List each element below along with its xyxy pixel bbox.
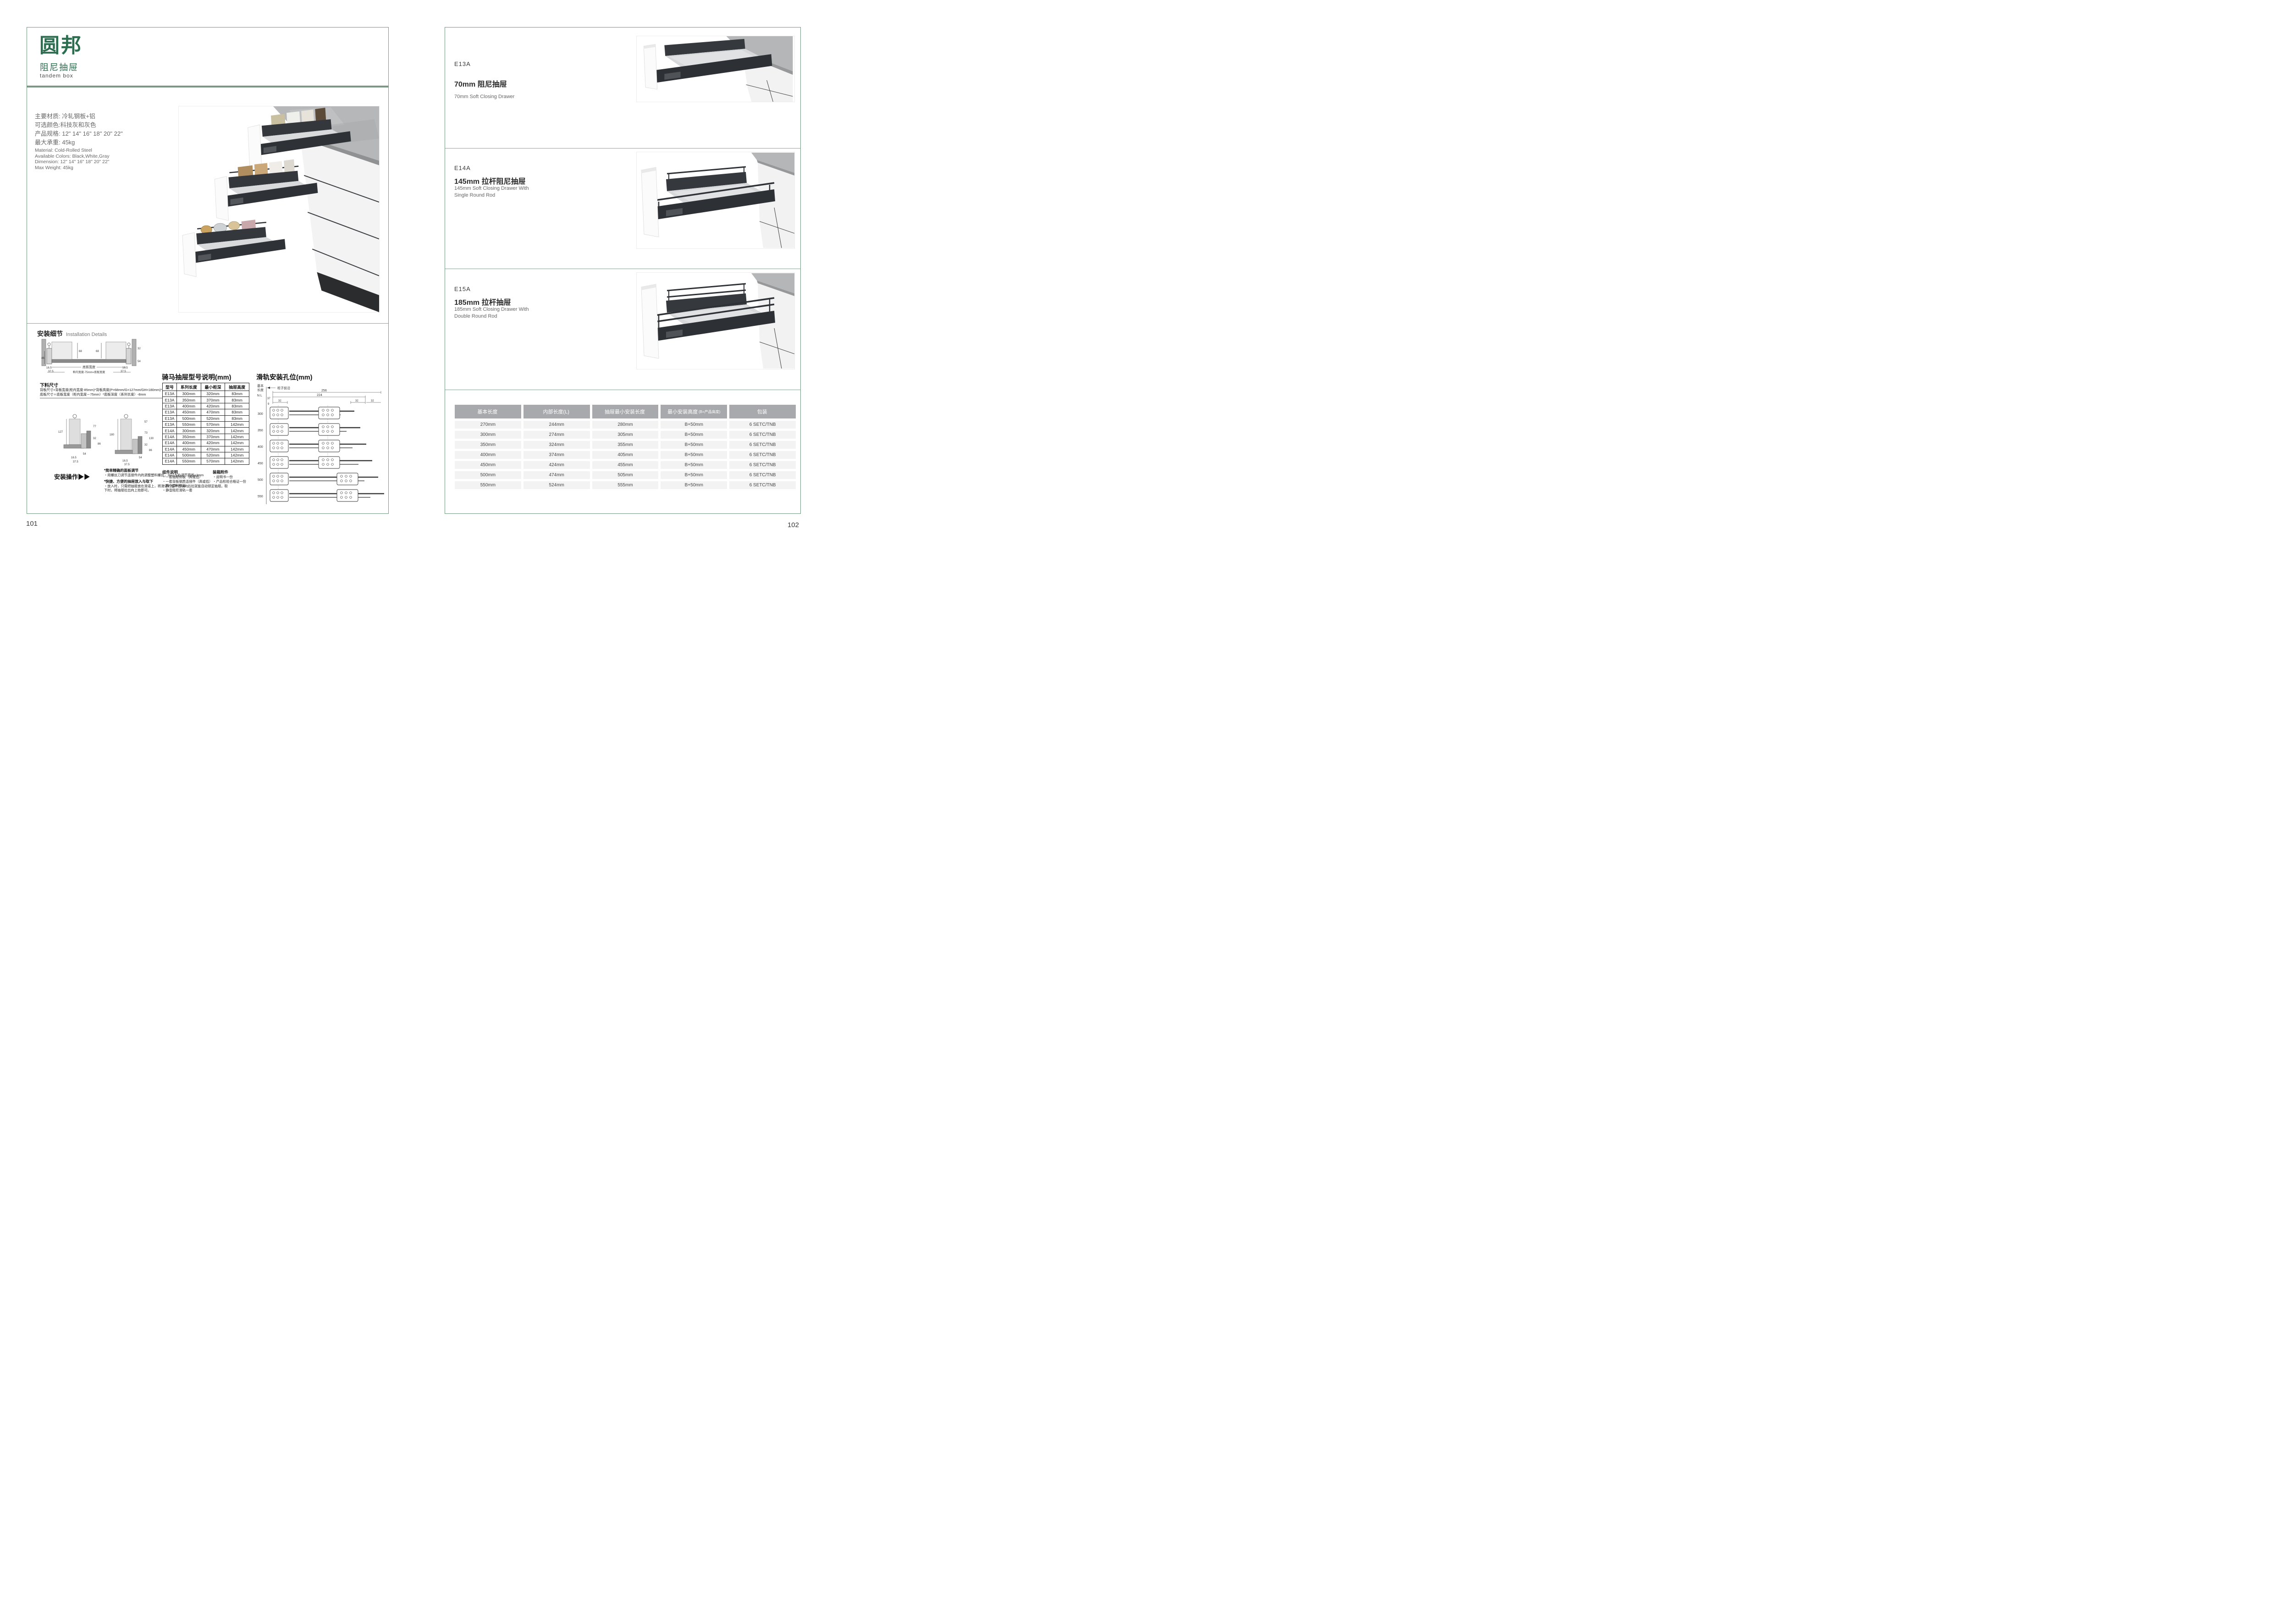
cell-model: E13A — [163, 403, 177, 409]
cutting-line: 背板尺寸=背板宽度(柜内宽度-85mm)*背板高度(P=68mm/G=127mm… — [40, 388, 171, 392]
section-divider — [445, 148, 800, 149]
table-row: E14A 300mm 320mm 142mm — [163, 428, 249, 434]
cell-min-depth: 370mm — [201, 397, 225, 403]
cell-basic-length: 270mm — [455, 421, 521, 429]
dim-label: 9 — [268, 403, 270, 406]
table-row: 500mm 474mm 505mm B+50mm 6 SETC/TNB — [455, 471, 796, 479]
dim-label: 37.5 — [124, 463, 130, 466]
cell-inner-length: 274mm — [523, 431, 590, 439]
header-text: 最小安装高度 — [667, 408, 698, 415]
spec-line: Available Colors: Black,White,Gray — [35, 154, 110, 160]
cell-height: 142mm — [225, 421, 249, 427]
dim-label: 86 — [149, 449, 152, 452]
cell-series-length: 450mm — [177, 409, 201, 415]
size-table-body: 270mm 244mm 280mm B+50mm 6 SETC/TNB 300m… — [455, 421, 796, 489]
brand-subtitle: 阻尼抽屉 — [40, 61, 78, 73]
cell-series-length: 300mm — [177, 428, 201, 434]
dim-label: 77 — [93, 425, 96, 428]
rail-row-label: 350 — [258, 429, 263, 432]
model-table-title: 骑马抽屉型号说明(mm) — [162, 372, 231, 382]
cell-series-length: 550mm — [177, 421, 201, 427]
section-divider — [445, 269, 800, 269]
cell-packing: 6 SETC/TNB — [729, 431, 796, 439]
dim-label: 37.5 — [121, 370, 126, 373]
cell-series-length: 350mm — [177, 397, 201, 403]
brand-tagline: tandem box — [40, 72, 73, 79]
cell-series-length: 400mm — [177, 440, 201, 446]
table-row: E13A 500mm 520mm 83mm — [163, 415, 249, 421]
list-item: ・一套背板钢质连接件（高或低） — [162, 479, 212, 484]
dim-label: 86 — [98, 443, 101, 446]
cell-series-length: 400mm — [177, 403, 201, 409]
cell-basic-length: 550mm — [455, 481, 521, 489]
list-item: ・两个塑料侧盖 — [162, 484, 212, 488]
rail-hole-diagram: 基本 长度 N L 柜子前沿 256 224 37 9 32 32 32 — [256, 381, 387, 511]
table-row: E13A 550mm 570mm 142mm — [163, 421, 249, 427]
page-number-right: 102 — [788, 521, 799, 529]
diagram-label: 底板宽度 — [83, 365, 95, 369]
cell-model: E14A — [163, 440, 177, 446]
cell-min-install-length: 280mm — [592, 421, 659, 429]
cell-inner-length: 374mm — [523, 451, 590, 459]
product-title-cn: 145mm 拉杆阻尼抽屉 — [454, 175, 526, 186]
cell-packing: 6 SETC/TNB — [729, 441, 796, 449]
table-header-cell: 包装 — [729, 405, 796, 418]
drawer-illustration-70mm — [637, 36, 794, 102]
brand-logo: 圆邦 — [39, 36, 83, 56]
table-row: 550mm 524mm 555mm B+50mm 6 SETC/TNB — [455, 481, 796, 489]
cell-packing: 6 SETC/TNB — [729, 461, 796, 469]
cell-min-install-length: 405mm — [592, 451, 659, 459]
dim-label: 37.5 — [48, 370, 54, 373]
drawer-bottom — [182, 220, 286, 277]
cell-model: E13A — [163, 415, 177, 421]
cell-min-depth: 320mm — [201, 428, 225, 434]
cell-basic-length: 450mm — [455, 461, 521, 469]
dim-label: 37 — [267, 397, 270, 400]
cell-model: E14A — [163, 452, 177, 458]
cell-series-length: 350mm — [177, 434, 201, 440]
dim-label: 73 — [144, 432, 148, 435]
cell-series-length: 500mm — [177, 452, 201, 458]
cell-min-depth: 370mm — [201, 434, 225, 440]
cell-min-install-height: B+50mm — [661, 481, 727, 489]
rail-row-label: 300 — [258, 413, 263, 416]
section-divider — [445, 390, 800, 390]
table-row: 400mm 374mm 405mm B+50mm 6 SETC/TNB — [455, 451, 796, 459]
cell-series-length: 300mm — [177, 391, 201, 397]
table-row: E14A 550mm 570mm 142mm — [163, 458, 249, 464]
rail-row-label: 550 — [258, 495, 263, 498]
dim-label: 180 — [110, 434, 115, 436]
table-header-cell: 抽屉最小安装长度 — [592, 405, 659, 418]
product-model-e15a: E15A — [454, 286, 471, 292]
product-title-cn: 70mm 阻尼抽屉 — [454, 78, 507, 89]
rail-row: 300 — [258, 407, 354, 419]
header-suffix: (B=产品高度) — [699, 409, 720, 414]
dim-label: 32 — [138, 347, 141, 350]
dim-label: 54 — [83, 453, 86, 456]
diagram-label: 长度 — [257, 388, 264, 392]
installation-title: 安装细节Installation Details — [37, 329, 107, 338]
header-text: 内部长度(L) — [543, 408, 569, 415]
spec-line: Max Weight: 45kg — [35, 165, 110, 171]
dim-label: 32 — [278, 400, 281, 402]
spec-line: Dimension: 12" 14" 16" 18" 20" 22" — [35, 159, 110, 165]
size-table-header: 基本长度 内部长度(L) 抽屉最小安装长度 最小安装高度(B=产品高度) 包装 — [455, 405, 796, 418]
table-row: E13A 400mm 420mm 83mm — [163, 403, 249, 409]
dim-label: 68 — [96, 350, 99, 353]
model-table-head: 型号系列长度最小柜深抽屉高度 — [163, 383, 249, 391]
spec-line: 主要材质: 冷轧钢板+铝 — [35, 112, 123, 121]
spec-line: 最大承重: 45kg — [35, 138, 123, 147]
cell-packing: 6 SETC/TNB — [729, 421, 796, 429]
cell-model: E14A — [163, 434, 177, 440]
list-item: ・说明书一份 — [213, 475, 246, 479]
dim-label: 256 — [321, 389, 327, 392]
cell-min-install-length: 505mm — [592, 471, 659, 479]
cell-inner-length: 474mm — [523, 471, 590, 479]
cell-height: 83mm — [225, 397, 249, 403]
table-row: E14A 400mm 420mm 142mm — [163, 440, 249, 446]
cell-min-depth: 520mm — [201, 452, 225, 458]
drawer-middle — [215, 160, 318, 221]
table-row: 350mm 324mm 355mm B+50mm 6 SETC/TNB — [455, 441, 796, 449]
product-title-en: 70mm Soft Closing Drawer — [454, 94, 514, 100]
header-text: 包装 — [757, 408, 767, 415]
cell-series-length: 550mm — [177, 458, 201, 464]
product-model-e13a: E13A — [454, 61, 471, 67]
rail-row: 350 — [258, 424, 360, 435]
cell-model: E13A — [163, 391, 177, 397]
dim-label: 68 — [79, 350, 82, 353]
diagram-label: 柜内宽度-75mm=底板宽度 — [73, 370, 105, 374]
cell-min-install-length: 455mm — [592, 461, 659, 469]
packing-block: 装箱附件 ・说明书一份・产品检验合格证一份 — [213, 470, 246, 484]
dim-label: 16.5 — [46, 367, 52, 369]
dim-label: 54 — [139, 457, 142, 459]
cell-min-depth: 470mm — [201, 446, 225, 452]
catalog-spread: 圆邦 阻尼抽屉 tandem box 主要材质: 冷轧钢板+铝可选颜色:科技灰和… — [0, 0, 830, 541]
cell-height: 83mm — [225, 391, 249, 397]
dim-label: 130 — [149, 437, 154, 440]
dim-label: 16.5 — [122, 460, 128, 462]
cell-inner-length: 524mm — [523, 481, 590, 489]
rail-row-label: 500 — [258, 479, 263, 482]
product-photo-e13a — [636, 36, 795, 102]
rail-row: 400 — [258, 440, 366, 452]
cell-inner-length: 324mm — [523, 441, 590, 449]
table-row: E14A 350mm 370mm 142mm — [163, 434, 249, 440]
dim-label: 32 — [144, 444, 148, 446]
cell-min-install-height: B+50mm — [661, 431, 727, 439]
product-title-en: 145mm Soft Closing Drawer With — [454, 185, 529, 192]
product-title-en: Single Round Rod — [454, 192, 495, 199]
cell-inner-length: 244mm — [523, 421, 590, 429]
specs-en: Material: Cold-Rolled SteelAvailable Col… — [35, 148, 110, 171]
cell-min-install-height: B+50mm — [661, 471, 727, 479]
packing-list: ・说明书一份・产品检验合格证一份 — [213, 475, 246, 484]
diagram-label: N L — [257, 394, 262, 397]
cell-min-install-height: B+50mm — [661, 441, 727, 449]
table-row: 300mm 274mm 305mm B+50mm 6 SETC/TNB — [455, 431, 796, 439]
dim-label: 16.5 — [71, 457, 77, 459]
table-row: 450mm 424mm 455mm B+50mm 6 SETC/TNB — [455, 461, 796, 469]
header-text: 基本长度 — [477, 408, 497, 415]
cell-height: 142mm — [225, 446, 249, 452]
cell-height: 142mm — [225, 440, 249, 446]
rail-row: 550 — [258, 490, 384, 501]
spec-line: 可选颜色:科技灰和灰色 — [35, 121, 123, 129]
content-divider — [27, 323, 388, 324]
cutting-title: 下料尺寸 — [40, 381, 58, 388]
cell-min-install-length: 305mm — [592, 431, 659, 439]
cross-section-diagram: 68 68 46 32 54 16.5 37.5 16.5 37.5 底板宽度 … — [41, 337, 143, 376]
cell-inner-length: 424mm — [523, 461, 590, 469]
cell-min-install-height: B+50mm — [661, 451, 727, 459]
cell-basic-length: 350mm — [455, 441, 521, 449]
cutting-line: 底板尺寸＝底板宽度（柜内宽度－75mm）*底板深度（系列长度）-8mm — [40, 392, 146, 397]
dim-label: 54 — [138, 360, 141, 363]
mounting-diagram-180: 180 57 73 130 32 86 54 16.5 37.5 — [110, 414, 154, 466]
cell-model: E13A — [163, 421, 177, 427]
packing-title: 装箱附件 — [213, 470, 246, 475]
cell-height: 142mm — [225, 458, 249, 464]
cell-min-depth: 420mm — [201, 440, 225, 446]
operation-label: 安装操作▶▶ — [54, 472, 90, 481]
table-row: 270mm 244mm 280mm B+50mm 6 SETC/TNB — [455, 421, 796, 429]
model-table-header-cell: 系列长度 — [177, 383, 201, 391]
product-photo-e14a — [636, 152, 795, 249]
cell-series-length: 500mm — [177, 415, 201, 421]
main-product-photo — [178, 106, 380, 313]
dim-label: 127 — [58, 431, 63, 434]
dim-label: 224 — [317, 394, 322, 397]
cell-min-install-height: B+50mm — [661, 421, 727, 429]
cell-height: 83mm — [225, 415, 249, 421]
cell-height: 83mm — [225, 409, 249, 415]
list-item: ・一套抽屉侧板（高或低） — [162, 475, 212, 479]
model-table-header-cell: 型号 — [163, 383, 177, 391]
model-table: 型号系列长度最小柜深抽屉高度 E13A 300mm 320mm 83mm E13… — [162, 383, 249, 465]
table-header-cell: 基本长度 — [455, 405, 521, 418]
cell-min-depth: 320mm — [201, 391, 225, 397]
mounting-diagrams: 127 77 32 86 54 16.5 37.5 180 57 73 — [55, 413, 155, 466]
header-divider — [27, 86, 388, 88]
cell-model: E13A — [163, 409, 177, 415]
cell-basic-length: 300mm — [455, 431, 521, 439]
cell-min-depth: 570mm — [201, 458, 225, 464]
table-row: E13A 300mm 320mm 83mm — [163, 391, 249, 397]
table-row: E13A 450mm 470mm 83mm — [163, 409, 249, 415]
drawer-illustration-145mm — [637, 152, 794, 248]
cell-packing: 6 SETC/TNB — [729, 481, 796, 489]
product-photo-e15a — [636, 272, 795, 369]
cell-packing: 6 SETC/TNB — [729, 471, 796, 479]
dim-label: 32 — [93, 437, 96, 440]
model-table-header-cell: 最小柜深 — [201, 383, 225, 391]
dim-label: 32 — [371, 400, 374, 402]
cutting-rule — [40, 398, 178, 398]
mounting-diagram-127: 127 77 32 86 54 16.5 37.5 — [58, 414, 101, 463]
model-table-header-cell: 抽屉高度 — [225, 383, 249, 391]
installation-title-cn: 安装细节 — [37, 330, 63, 337]
spec-line: Material: Cold-Rolled Steel — [35, 148, 110, 154]
cell-basic-length: 500mm — [455, 471, 521, 479]
product-title-cn: 185mm 拉杆抽屉 — [454, 296, 511, 307]
installation-title-en: Installation Details — [66, 332, 107, 337]
spec-line: 产品规格: 12" 14" 16" 18" 20" 22" — [35, 129, 123, 138]
dim-label: 57 — [144, 421, 148, 424]
list-item: ・静音阻尼滑轨一套 — [162, 488, 212, 493]
cell-model: E14A — [163, 428, 177, 434]
cell-model: E14A — [163, 458, 177, 464]
size-table: 基本长度 内部长度(L) 抽屉最小安装长度 最小安装高度(B=产品高度) 包装 … — [455, 405, 796, 489]
rail-row: 450 — [258, 457, 372, 468]
cell-min-install-height: B+50mm — [661, 461, 727, 469]
cell-height: 142mm — [225, 428, 249, 434]
cell-min-depth: 420mm — [201, 403, 225, 409]
table-header-cell: 最小安装高度(B=产品高度) — [661, 405, 727, 418]
cabinet-drawers-illustration — [179, 106, 379, 312]
components-block: 组件说明 ・一套抽屉侧板（高或低）・一套背板钢质连接件（高或低）・两个塑料侧盖・… — [162, 470, 212, 492]
model-table-body: E13A 300mm 320mm 83mm E13A 350mm 370mm 8… — [163, 391, 249, 465]
rail-row-label: 450 — [258, 462, 263, 465]
rail-row-label: 400 — [258, 446, 263, 449]
cell-basic-length: 400mm — [455, 451, 521, 459]
right-page: E13A 70mm 阻尼抽屉 70mm Soft Closing Drawer — [445, 27, 801, 514]
list-item: ・产品检验合格证一份 — [213, 479, 246, 484]
header-text: 抽屉最小安装长度 — [605, 408, 645, 415]
product-title-en: 185mm Soft Closing Drawer With — [454, 306, 529, 313]
cell-model: E13A — [163, 397, 177, 403]
product-title-en: Double Round Rod — [454, 313, 497, 320]
rail-row: 500 — [258, 473, 378, 485]
table-row: E14A 450mm 470mm 142mm — [163, 446, 249, 452]
cell-min-install-length: 355mm — [592, 441, 659, 449]
dim-label: 46 — [41, 357, 44, 360]
rail-diagram-title: 滑轨安装孔位(mm) — [256, 372, 312, 382]
table-row: E13A 350mm 370mm 83mm — [163, 397, 249, 403]
dim-label: 32 — [355, 400, 358, 402]
drawer-illustration-185mm — [637, 273, 794, 369]
cell-min-depth: 470mm — [201, 409, 225, 415]
left-page: 圆邦 阻尼抽屉 tandem box 主要材质: 冷轧钢板+铝可选颜色:科技灰和… — [27, 27, 389, 514]
cell-height: 142mm — [225, 452, 249, 458]
cell-min-depth: 520mm — [201, 415, 225, 421]
components-list: ・一套抽屉侧板（高或低）・一套背板钢质连接件（高或低）・两个塑料侧盖・静音阻尼滑… — [162, 475, 212, 492]
table-header-cell: 内部长度(L) — [523, 405, 590, 418]
cell-series-length: 450mm — [177, 446, 201, 452]
cell-min-depth: 570mm — [201, 421, 225, 427]
cell-model: E14A — [163, 446, 177, 452]
cell-height: 83mm — [225, 403, 249, 409]
page-number-left: 101 — [26, 520, 38, 528]
dim-label: 37.5 — [73, 461, 78, 463]
cell-height: 142mm — [225, 434, 249, 440]
product-model-e14a: E14A — [454, 165, 471, 171]
diagram-label: 柜子前沿 — [277, 386, 290, 390]
diagram-label: 基本 — [257, 384, 264, 388]
components-title: 组件说明 — [162, 470, 212, 475]
cell-packing: 6 SETC/TNB — [729, 451, 796, 459]
specs-cn: 主要材质: 冷轧钢板+铝可选颜色:科技灰和灰色产品规格: 12" 14" 16"… — [35, 112, 123, 147]
table-row: E14A 500mm 520mm 142mm — [163, 452, 249, 458]
cell-min-install-length: 555mm — [592, 481, 659, 489]
